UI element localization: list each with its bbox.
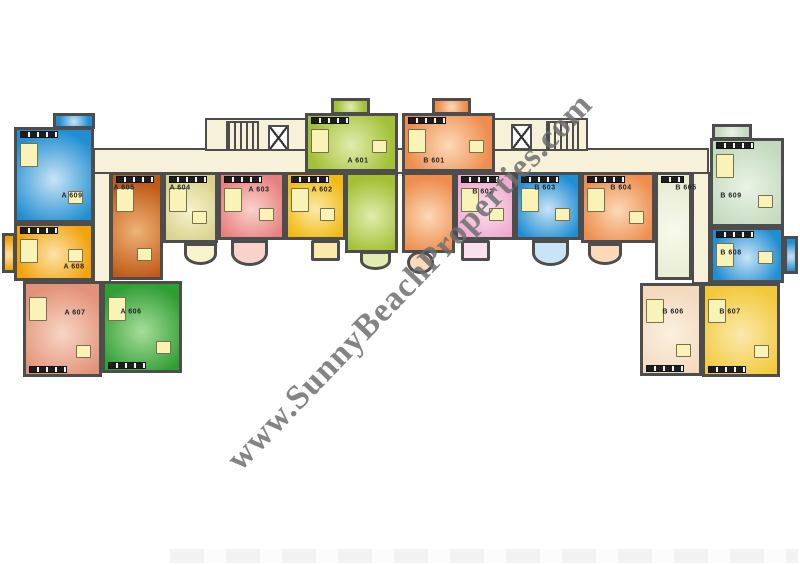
kitchen-fixture-B601 — [408, 117, 446, 124]
table-B606 — [676, 344, 691, 357]
unit-label-A607: A 607 — [65, 310, 86, 317]
table-A607 — [76, 345, 91, 358]
unit-label-A608: A 608 — [64, 264, 85, 271]
unit-A609 — [53, 113, 95, 129]
kitchen-fixture-A601 — [311, 117, 349, 124]
unit-B609 — [710, 138, 784, 227]
table-B603 — [555, 208, 570, 221]
balcony-B604 — [588, 243, 622, 265]
kitchen-fixture-B608 — [716, 231, 754, 238]
bed-B604 — [587, 188, 605, 212]
table-A604 — [192, 211, 207, 224]
balcony-A603 — [231, 240, 268, 266]
unit-label-A605: A 605 — [114, 185, 135, 192]
unit-B608 — [784, 236, 798, 274]
table-B609 — [758, 195, 773, 208]
unit-B609 — [712, 124, 752, 140]
unit-A609 — [14, 127, 94, 223]
unit-label-A606: A 606 — [121, 309, 142, 316]
kitchen-fixture-A606 — [108, 362, 146, 369]
balcony-A604 — [184, 243, 217, 265]
bed-A604 — [169, 188, 187, 212]
unit-B601 — [432, 98, 471, 115]
balcony-B603 — [532, 240, 569, 266]
kitchen-fixture-A608 — [20, 227, 58, 234]
bed-A608 — [20, 239, 38, 263]
unit-label-A601: A 601 — [348, 158, 369, 165]
unit-A601 — [345, 172, 398, 253]
unit-label-A609: A 609 — [62, 193, 83, 200]
bed-A609 — [20, 143, 38, 167]
unit-label-B604: B 604 — [610, 185, 631, 192]
kitchen-fixture-A603 — [224, 176, 262, 183]
kitchen-fixture-A605 — [116, 176, 154, 183]
kitchen-fixture-A604 — [169, 176, 207, 183]
table-B608 — [758, 251, 773, 264]
stairs-icon-left — [226, 121, 259, 151]
bottom-faint-plan-edge — [170, 549, 798, 563]
bed-A601 — [311, 129, 329, 153]
unit-label-A603: A 603 — [249, 187, 270, 194]
kitchen-fixture-B609 — [716, 142, 754, 149]
table-A606 — [156, 341, 171, 354]
unit-A608 — [2, 233, 16, 273]
kitchen-fixture-B604 — [587, 176, 625, 183]
unit-label-B608: B 608 — [720, 250, 741, 257]
unit-label-B603: B 603 — [534, 185, 555, 192]
table-A602 — [320, 208, 335, 221]
floorplan: www.SunnyBeachProperties.com A 609A 608A… — [0, 0, 800, 565]
unit-label-B609: B 609 — [720, 193, 741, 200]
bed-B601 — [408, 129, 426, 153]
unit-label-B601: B 601 — [423, 158, 444, 165]
kitchen-fixture-B607 — [708, 366, 746, 373]
table-B607 — [754, 345, 769, 358]
kitchen-fixture-B605 — [661, 176, 684, 183]
unit-A606 — [102, 281, 182, 373]
elevator-icon-left — [268, 125, 289, 151]
unit-A607 — [23, 281, 102, 377]
balcony-A601 — [360, 251, 391, 270]
corridor-main-hall — [93, 148, 709, 174]
kitchen-fixture-B606 — [646, 365, 684, 372]
unit-label-B605: B 605 — [675, 185, 696, 192]
unit-label-B607: B 607 — [719, 309, 740, 316]
table-A608 — [68, 249, 83, 262]
bed-A605 — [116, 188, 134, 212]
unit-B606 — [640, 283, 702, 376]
unit-A601 — [331, 98, 370, 115]
bed-B606 — [646, 299, 664, 323]
balcony-A602 — [311, 240, 340, 261]
kitchen-fixture-A609 — [20, 131, 58, 138]
unit-B607 — [702, 283, 780, 377]
table-B601 — [469, 140, 484, 153]
unit-label-A602: A 602 — [312, 187, 333, 194]
table-B604 — [629, 211, 644, 224]
kitchen-fixture-A602 — [291, 176, 329, 183]
bed-A602 — [291, 188, 309, 212]
bed-A607 — [29, 297, 47, 321]
bed-B609 — [716, 154, 734, 178]
table-A605 — [137, 248, 152, 261]
bed-A603 — [224, 188, 242, 212]
table-A601 — [372, 140, 387, 153]
unit-label-A604: A 604 — [170, 185, 191, 192]
unit-label-B606: B 606 — [662, 309, 683, 316]
table-A603 — [259, 208, 274, 221]
kitchen-fixture-A607 — [29, 366, 67, 373]
